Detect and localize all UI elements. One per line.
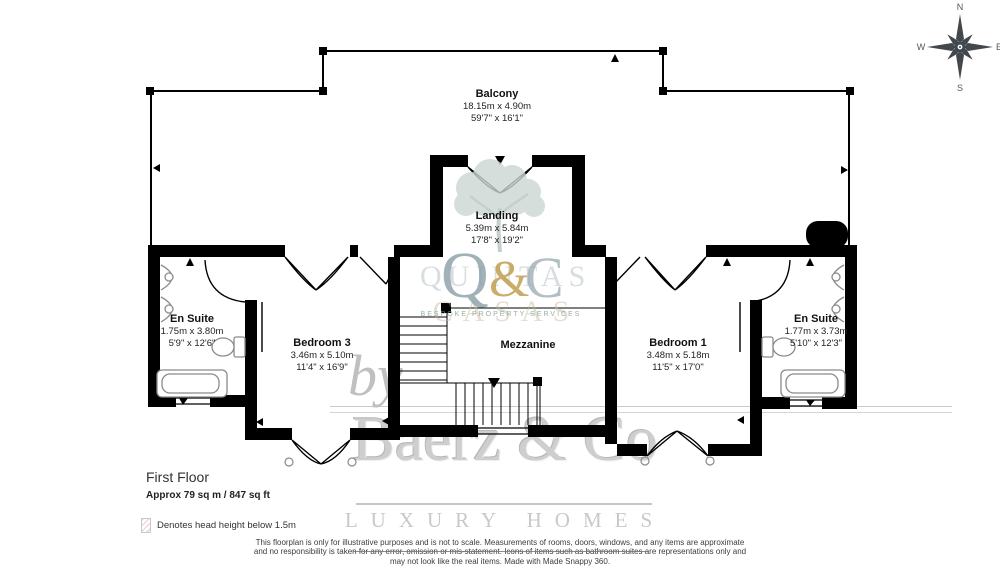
room-name: En Suite [736,313,896,326]
compass-icon: N E S W [917,2,1000,93]
bathtub-icon [157,370,227,397]
disclaimer-line-3: may not look like the real items. Made w… [0,557,1000,566]
door-hinge-icon [285,457,714,466]
stairs-icon [400,308,605,425]
room-label-balcony: Balcony 18.15m x 4.90m 59'7" x 16'1" [417,88,577,125]
room-dims-metric: 1.77m x 3.73m [736,326,896,338]
room-name: Bedroom 1 [598,337,758,350]
room-name: Bedroom 3 [242,337,402,350]
room-dims-metric: 18.15m x 4.90m [417,101,577,113]
compass-s-label: S [957,83,963,93]
room-label-bedroom1: Bedroom 1 3.48m x 5.18m 11'5" x 17'0" [598,337,758,374]
floorplan-page: { "title": { "floor": "First Floor", "ar… [0,0,1000,579]
room-label-landing: Landing 5.39m x 5.84m 17'8" x 19'2" [417,210,577,247]
room-name: Mezzanine [448,339,608,352]
room-label-bedroom3: Bedroom 3 3.46m x 5.10m 11'4" x 16'9" [242,337,402,374]
title-block: First Floor Approx 79 sq m / 847 sq ft [146,469,270,501]
floor-area: Approx 79 sq m / 847 sq ft [146,490,270,501]
bathtub-icon [781,370,845,397]
room-dims-imperial: 11'5" x 17'0" [598,362,758,374]
room-name: En Suite [112,313,272,326]
room-dims-imperial: 59'7" x 16'1" [417,113,577,125]
room-name: Balcony [417,88,577,101]
disclaimer-line-1: This floorplan is only for illustrative … [0,538,1000,547]
room-name: Landing [417,210,577,223]
room-dims-metric: 3.46m x 5.10m [242,350,402,362]
room-label-mezzanine: Mezzanine [448,339,608,352]
room-dims-metric: 3.48m x 5.18m [598,350,758,362]
hot-tub-icon [806,221,848,248]
room-dims-metric: 5.39m x 5.84m [417,223,577,235]
floor-title: First Floor [146,469,270,485]
compass-w-label: W [917,42,926,52]
room-dims-imperial: 11'4" x 16'9" [242,362,402,374]
room-dims-imperial: 17'8" x 19'2" [417,235,577,247]
room-label-ensuite-right: En Suite 1.77m x 3.73m 5'10" x 12'3" [736,313,896,350]
compass-e-label: E [996,42,1000,52]
watermark-strike-line [353,551,649,552]
compass-n-label: N [957,2,964,12]
room-dims-imperial: 5'10" x 12'3" [736,338,896,350]
